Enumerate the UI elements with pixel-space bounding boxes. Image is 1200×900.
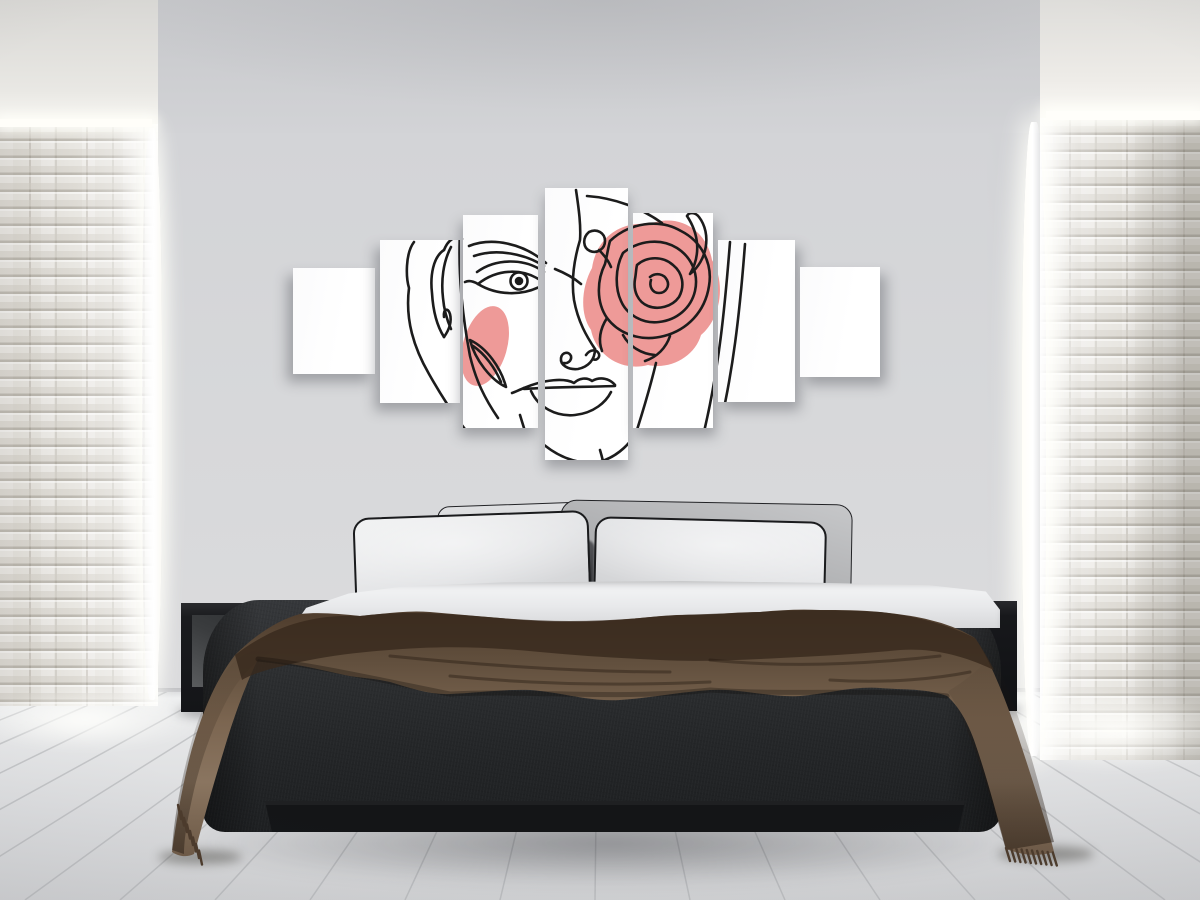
art-panel-6 [718,240,795,402]
wall-art-canvas-set [293,188,880,460]
art-panel-5 [633,213,713,428]
brick-wall-left [0,124,158,706]
ceiling-above-left-brick [0,0,158,130]
blanket-fringe [178,805,1057,866]
ceiling [0,0,1200,133]
art-panel-3 [463,215,538,428]
blanket [150,560,1080,900]
art-panel-7 [800,267,880,377]
cove-light-top-left [0,119,152,127]
bedroom-scene [0,0,1200,900]
art-panel-2 [380,240,460,403]
cove-light-top-right [1046,111,1200,120]
art-panel-4 [545,188,628,460]
ceiling-above-right-brick [1040,0,1200,124]
blanket-shape [172,610,1054,857]
art-panel-1 [293,268,375,374]
